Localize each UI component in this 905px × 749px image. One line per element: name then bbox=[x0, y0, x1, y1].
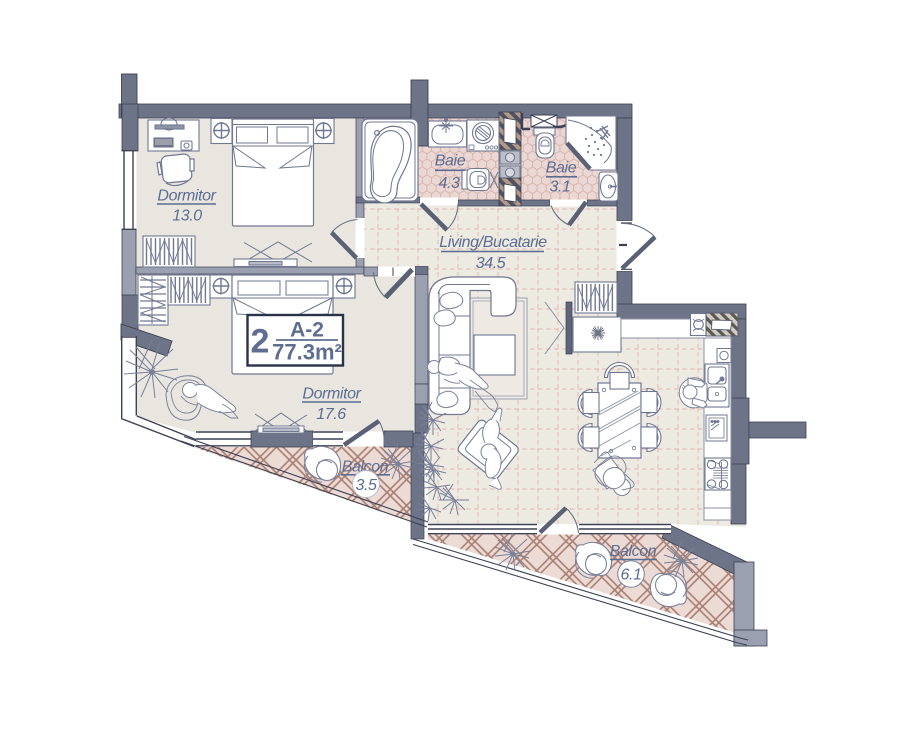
svg-text:3.5: 3.5 bbox=[355, 477, 377, 494]
svg-text:Living/Bucatarie: Living/Bucatarie bbox=[439, 234, 547, 251]
svg-text:6.1: 6.1 bbox=[620, 567, 641, 584]
svg-text:A-2: A-2 bbox=[290, 319, 324, 342]
svg-text:77.3m²: 77.3m² bbox=[272, 340, 342, 365]
svg-text:Baie: Baie bbox=[546, 160, 577, 177]
svg-text:17.6: 17.6 bbox=[316, 406, 346, 423]
svg-text:13.0: 13.0 bbox=[172, 208, 202, 225]
svg-text:Baie: Baie bbox=[435, 153, 466, 170]
svg-text:Dormitor: Dormitor bbox=[302, 386, 361, 403]
svg-text:4.3: 4.3 bbox=[438, 175, 460, 192]
svg-text:2: 2 bbox=[251, 323, 270, 361]
svg-text:34.5: 34.5 bbox=[476, 255, 506, 272]
svg-text:Dormitor: Dormitor bbox=[157, 188, 216, 205]
svg-text:3.1: 3.1 bbox=[549, 179, 570, 196]
svg-text:Balcon: Balcon bbox=[610, 543, 657, 560]
